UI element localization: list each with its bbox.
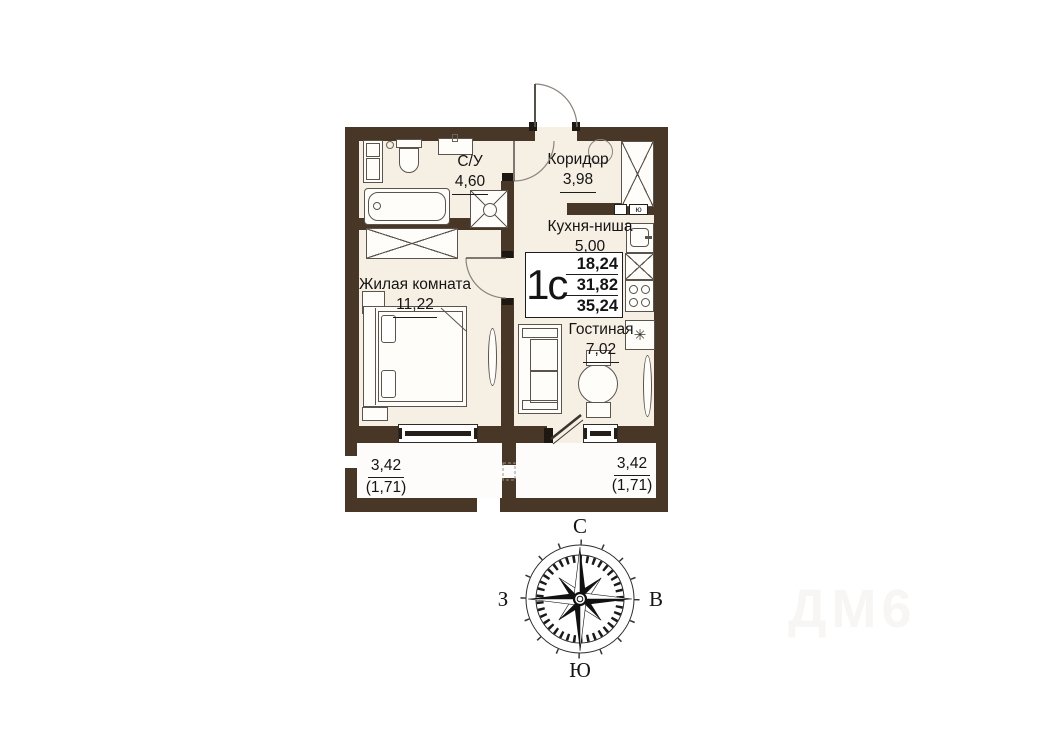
compass-north-label: С — [573, 517, 587, 538]
floorplan-page: ДМ6 — [0, 0, 1052, 744]
balcony-right-label: 3,42 (1,71) — [604, 454, 660, 497]
door-jamb — [529, 122, 537, 131]
wall-box — [614, 204, 627, 215]
room-label-bathroom: С/У 4,60 — [435, 152, 505, 195]
mirror — [488, 328, 497, 386]
stove — [625, 280, 654, 312]
valve-icon — [386, 141, 394, 149]
unit-label: 1с — [526, 264, 566, 306]
door-jamb — [572, 122, 580, 131]
wall-segment — [654, 127, 668, 432]
watermark: ДМ6 — [788, 578, 1052, 662]
room-label-lounge: Гостиная 7,02 — [556, 320, 646, 363]
door-jamb — [544, 428, 553, 443]
area-overall: 35,24 — [566, 296, 618, 316]
entrance-door-arc — [535, 84, 577, 127]
window — [583, 424, 618, 443]
hall-wardrobe — [621, 141, 654, 207]
radiator — [643, 355, 652, 417]
shower-tray — [470, 190, 508, 228]
compass-center — [574, 593, 586, 605]
balcony-left-label: 3,42 (1,71) — [358, 456, 414, 499]
toilet-tank — [396, 139, 422, 148]
area-total: 31,82 — [566, 275, 618, 296]
window — [398, 424, 478, 443]
room-area: 7,02 — [583, 340, 619, 362]
compass-west-label: З — [498, 587, 509, 611]
washing-machine — [363, 140, 383, 183]
bedroom-wardrobe — [366, 228, 458, 259]
room-area: 3,98 — [560, 170, 596, 192]
wall-gap — [477, 498, 500, 512]
door-jamb — [502, 298, 513, 305]
balcony-wall — [345, 498, 668, 512]
wall-segment — [478, 426, 547, 443]
bench — [362, 407, 388, 421]
balcony-wall — [345, 432, 357, 512]
compass-south-label: Ю — [569, 658, 591, 682]
room-label-living: Жилая комната 11,22 — [356, 275, 474, 318]
room-label-corridor: Коридор 3,98 — [542, 150, 614, 193]
faucet-icon — [452, 134, 458, 142]
room-area: 4,60 — [452, 172, 488, 194]
wall-segment — [501, 298, 514, 432]
dining-table — [578, 364, 618, 404]
chair — [586, 402, 611, 418]
wall-gap — [345, 456, 357, 468]
balcony-divider — [502, 478, 516, 498]
door-jamb — [502, 251, 513, 258]
wall-marker-label: ю — [629, 204, 648, 215]
room-area: 11,22 — [393, 295, 437, 317]
area-living: 18,24 — [566, 254, 618, 275]
compass-east-label: В — [649, 587, 663, 611]
unit-info-box: 1с 18,24 31,82 35,24 — [525, 252, 623, 318]
bed — [363, 306, 467, 407]
balcony-divider — [502, 443, 516, 465]
compass-rose: С Ю З В — [495, 517, 665, 682]
toilet — [399, 148, 419, 173]
